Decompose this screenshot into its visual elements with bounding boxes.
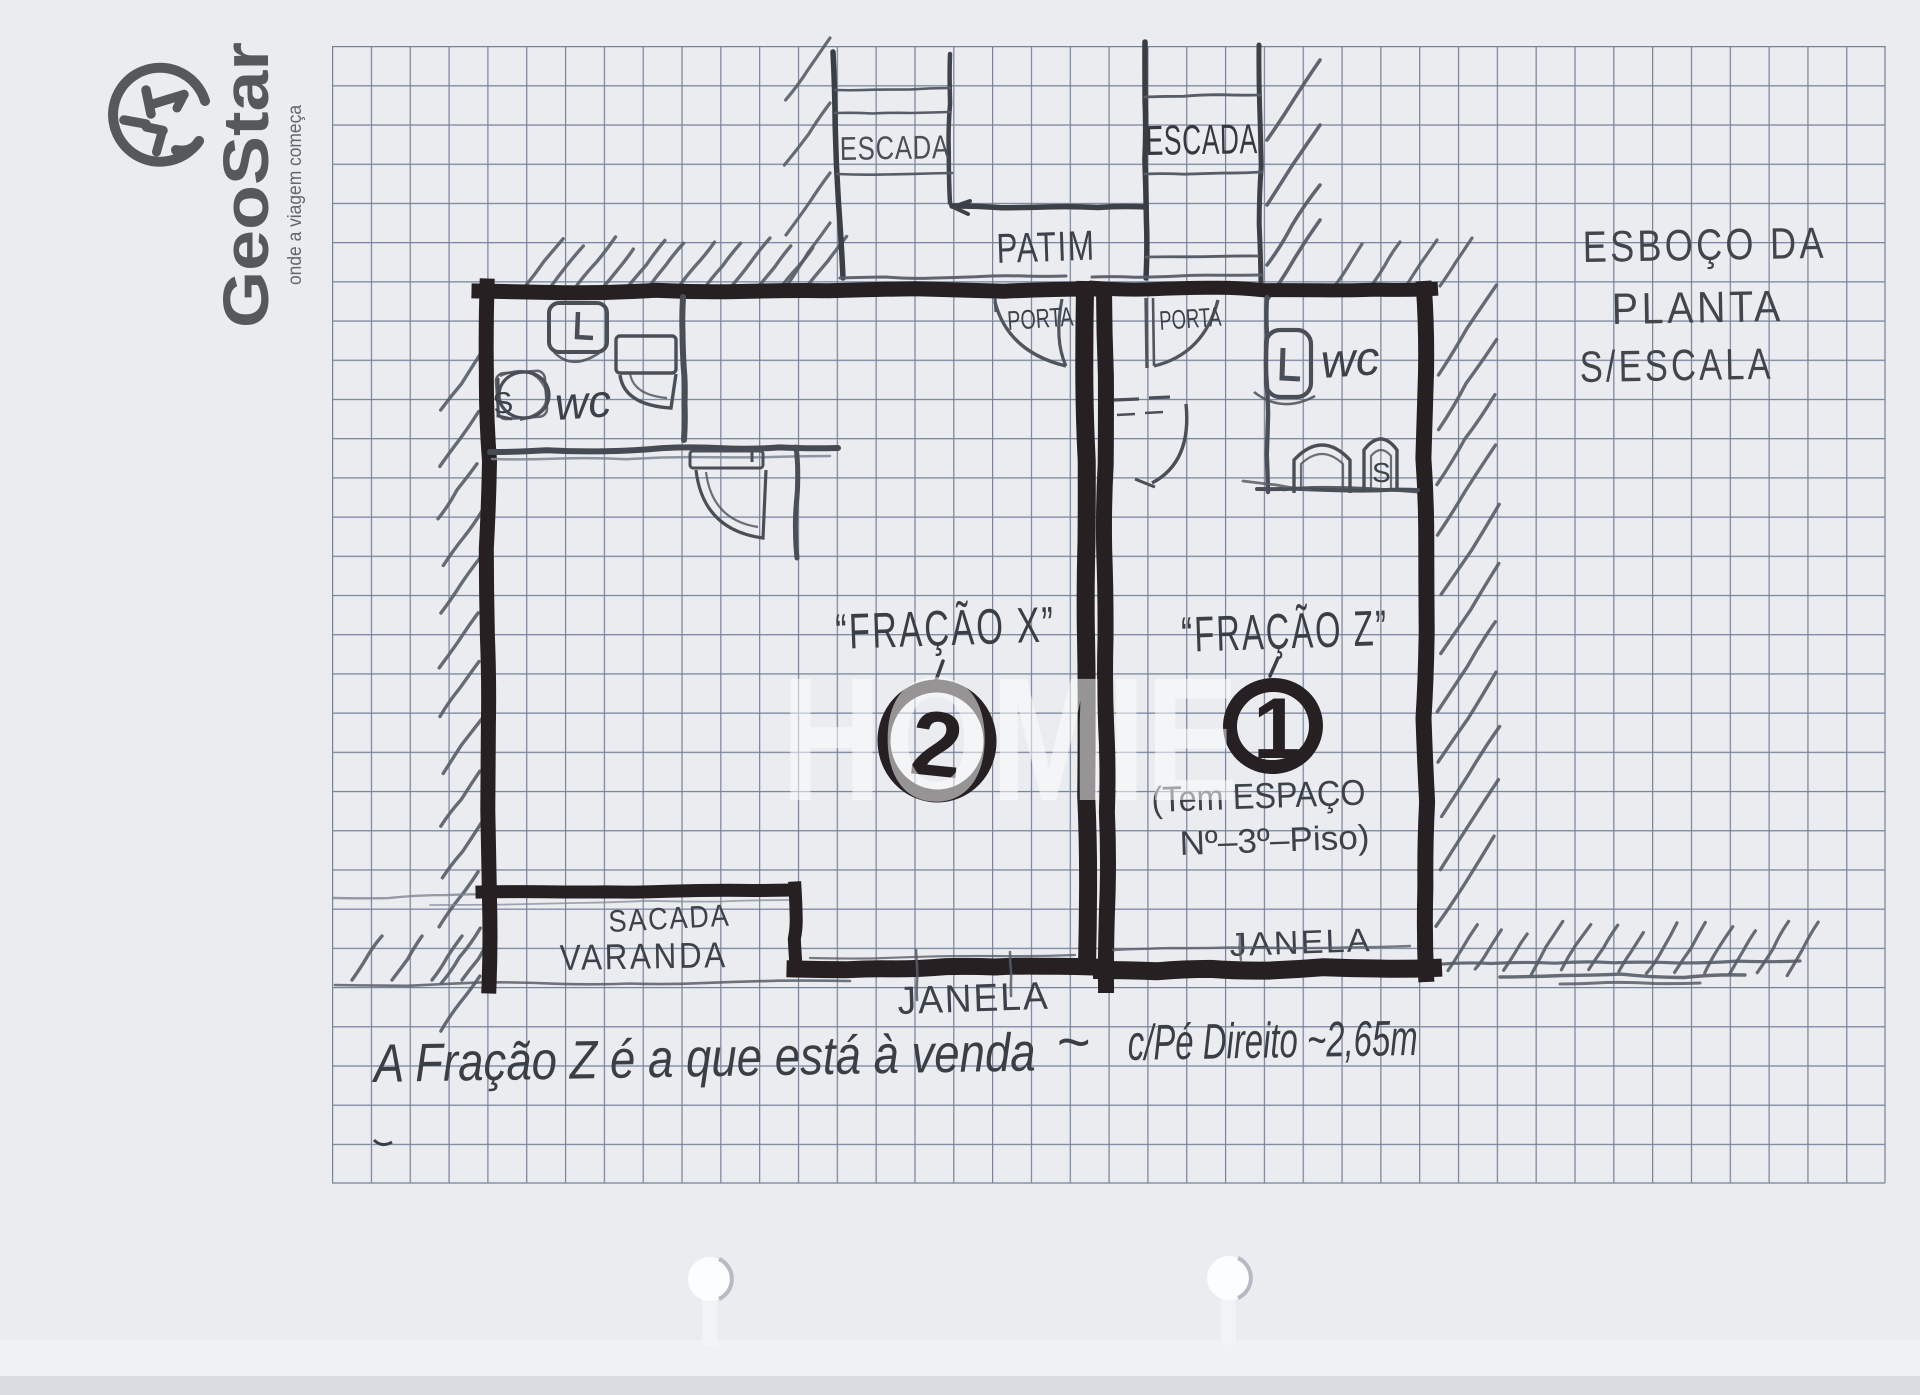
svg-text:PLANTA: PLANTA: [1611, 282, 1784, 334]
svg-text:c/Pé Direito ~2,65m: c/Pé Direito ~2,65m: [1127, 1010, 1418, 1071]
svg-text:JANELA: JANELA: [1229, 921, 1372, 963]
svg-text:S: S: [491, 386, 514, 421]
svg-text:~: ~: [1056, 1010, 1090, 1075]
svg-text:VARANDA: VARANDA: [559, 934, 728, 978]
svg-text:ESCADA: ESCADA: [1145, 115, 1258, 164]
svg-text:HOMIE: HOMIE: [781, 642, 1239, 838]
svg-text:S/ESCALA: S/ESCALA: [1579, 340, 1774, 392]
svg-text:wc: wc: [553, 374, 613, 430]
svg-text:PATIM: PATIM: [996, 222, 1097, 272]
svg-text:S: S: [1372, 457, 1391, 488]
svg-text:PORTA: PORTA: [1158, 302, 1222, 336]
svg-text:SACADA: SACADA: [608, 898, 732, 939]
svg-text:A Fração Z é a que está à vend: A Fração Z é a que está à venda: [371, 1022, 1036, 1094]
svg-text:wc: wc: [1319, 332, 1381, 389]
svg-text:JANELA: JANELA: [897, 975, 1050, 1023]
svg-text:PORTA: PORTA: [1006, 301, 1074, 336]
svg-text:1: 1: [1253, 681, 1301, 777]
svg-text:ESCADA: ESCADA: [839, 128, 950, 167]
svg-text:ESBOÇO DA: ESBOÇO DA: [1582, 219, 1827, 272]
svg-text:onde a viagem começa: onde a viagem começa: [285, 105, 306, 285]
svg-text:GeoStar: GeoStar: [210, 42, 282, 328]
